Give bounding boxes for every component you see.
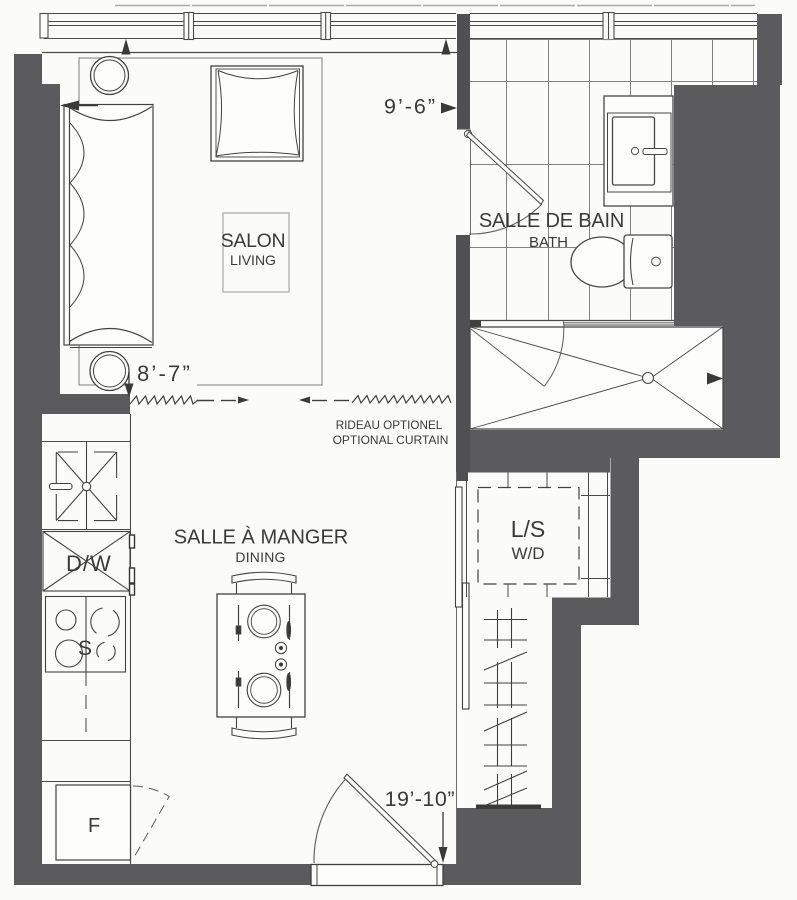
svg-text:F: F xyxy=(88,815,100,837)
svg-text:D/W: D/W xyxy=(66,551,112,576)
svg-text:SALLE DE BAIN: SALLE DE BAIN xyxy=(479,210,624,232)
svg-text:DINING: DINING xyxy=(235,549,285,565)
svg-text:RIDEAU OPTIONEL: RIDEAU OPTIONEL xyxy=(336,419,443,432)
svg-text:OPTIONAL CURTAIN: OPTIONAL CURTAIN xyxy=(333,433,449,447)
svg-text:S: S xyxy=(78,637,92,660)
svg-text:BATH: BATH xyxy=(529,234,568,251)
svg-text:LIVING: LIVING xyxy=(230,252,276,268)
svg-text:L/S: L/S xyxy=(511,516,546,542)
svg-text:SALON: SALON xyxy=(221,230,286,252)
svg-text:SALLE À MANGER: SALLE À MANGER xyxy=(174,526,349,549)
svg-text:W/D: W/D xyxy=(511,544,544,563)
svg-text:9’-6”: 9’-6” xyxy=(384,95,437,119)
svg-text:8’-7”: 8’-7” xyxy=(137,361,192,386)
svg-text:19’-10”: 19’-10” xyxy=(385,787,455,811)
